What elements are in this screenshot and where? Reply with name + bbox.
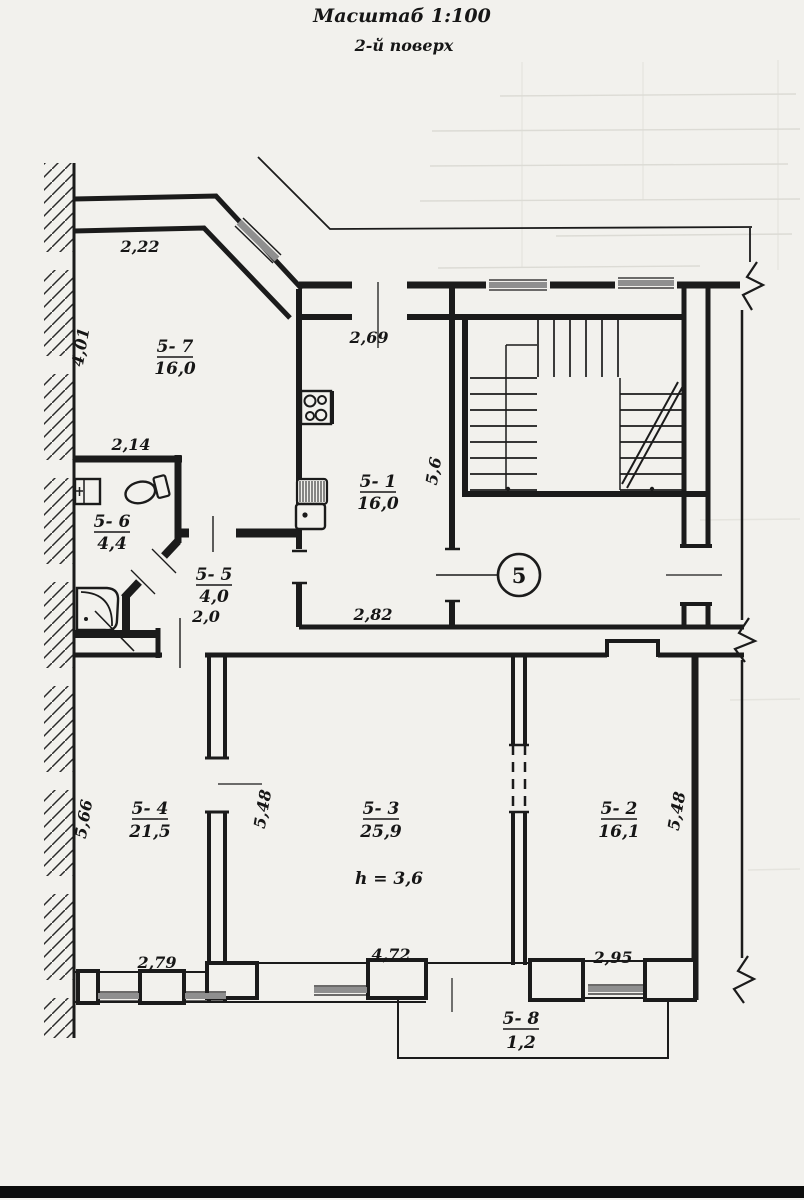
right-lower-walls — [695, 262, 763, 1003]
room-id-5-6: 5- 6 — [94, 512, 131, 532]
dim-2-95: 2,95 — [593, 948, 633, 967]
dim-2-14: 2,14 — [111, 435, 151, 454]
room-area-5-7: 16,0 — [154, 359, 196, 379]
right-upper-corridor-wall — [666, 283, 722, 627]
room-area-5-4: 21,5 — [128, 822, 170, 842]
stair-steps — [470, 320, 684, 490]
page-subtitle: 2-й поверх — [354, 36, 454, 55]
washbasin-icon — [75, 479, 100, 504]
room-area-5-8: 1,2 — [506, 1033, 536, 1053]
dim-5-48-right: 5,48 — [664, 790, 689, 832]
room-id-5-8: 5- 8 — [503, 1009, 540, 1029]
room-5-7-walls — [74, 157, 752, 318]
page-title: Масштаб 1:100 — [312, 5, 491, 27]
dim-2-22: 2,22 — [120, 237, 160, 256]
ceiling-height-note: h = 3,6 — [355, 869, 423, 889]
room-id-5-1: 5- 1 — [360, 472, 397, 492]
room-area-5-6: 4,4 — [97, 534, 127, 554]
dim-5-48-left: 5,48 — [250, 788, 275, 830]
room-id-5-2: 5- 2 — [601, 799, 638, 819]
stove-icon — [301, 391, 333, 424]
room-area-5-1: 16,0 — [357, 494, 399, 514]
room-id-5-4: 5- 4 — [132, 799, 169, 819]
dim-4-72: 4,72 — [372, 945, 411, 964]
room-area-5-2: 16,1 — [598, 822, 639, 842]
dim-5-6: 5,6 — [422, 456, 446, 487]
corridor-walls — [74, 618, 744, 668]
dim-2-82: 2,82 — [353, 605, 393, 624]
kitchen-sink-icon — [296, 504, 325, 529]
room-area-5-5: 4,0 — [199, 587, 229, 607]
dim-2-69: 2,69 — [349, 328, 389, 347]
scanned-floor-plan-page: Масштаб 1:100 2-й поверх 5- 7 16,0 5- 1 … — [0, 0, 804, 1200]
dim-2-79: 2,79 — [137, 953, 177, 972]
room-id-5-7: 5- 7 — [157, 337, 194, 357]
staircase — [462, 317, 710, 497]
kitchen-counter-icon — [297, 479, 327, 504]
room-area-5-3: 25,9 — [359, 822, 402, 842]
scan-edge-bar — [0, 1186, 804, 1198]
wall-break-icon — [743, 262, 763, 310]
dim-2-0: 2,0 — [191, 607, 220, 626]
room-id-5-3: 5- 3 — [363, 799, 400, 819]
toilet-icon — [123, 475, 170, 506]
room-id-5-5: 5- 5 — [196, 565, 233, 585]
floor-plan: Масштаб 1:100 2-й поверх 5- 7 16,0 5- 1 … — [0, 0, 804, 1200]
plan-text-labels: Масштаб 1:100 2-й поверх 5- 7 16,0 5- 1 … — [68, 5, 689, 1053]
wall-break-icon — [734, 956, 754, 1003]
left-boundary-hatched-wall — [42, 163, 76, 1038]
apartment-number: 5 — [512, 563, 527, 588]
stair-direction-line — [622, 382, 683, 488]
